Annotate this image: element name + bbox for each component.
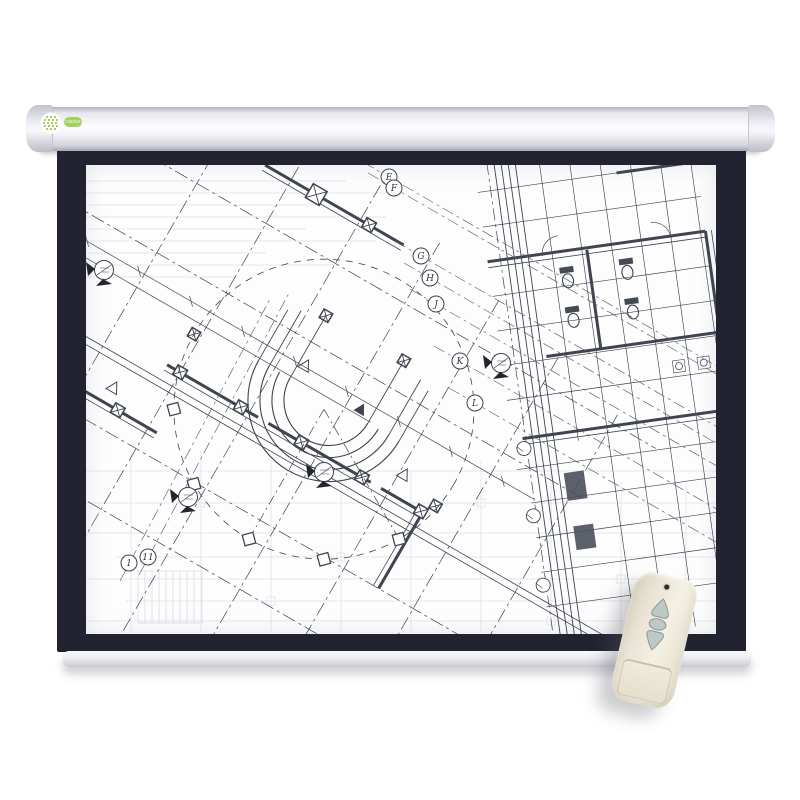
svg-text:H: H [425,274,434,284]
blueprint-wing-a [86,165,716,634]
shaft-block [564,470,588,501]
grid-bubble: H [404,263,716,488]
svg-text:1: 1 [126,559,132,569]
product-photo: E F G H J K L 1 11 [0,0,800,800]
screen-surface: E F G H J K L 1 11 [86,165,716,634]
blueprint-underlay [86,181,716,631]
remote-buttons [633,593,683,656]
svg-text:K: K [456,357,465,367]
dashed-circle [119,204,529,614]
ir-led-icon [664,584,670,590]
grid-bubble: E [363,165,716,387]
housing-end-cap-right [748,105,775,152]
blueprint-drawing: E F G H J K L 1 11 [86,165,716,634]
brand-globe-icon [40,112,62,134]
stop-button [648,617,667,632]
blueprint-wing-b [461,165,716,634]
svg-text:G: G [417,252,424,262]
roller-housing [38,107,762,151]
raise-button [651,597,672,619]
grid-bubble: F [368,173,716,398]
triangle-markers [106,279,435,542]
battery-door [616,658,673,705]
svg-text:11: 11 [142,553,153,563]
lower-button [644,630,665,652]
shaft-block [573,524,596,551]
brand-wordmark: cactus [64,117,82,127]
svg-text:F: F [390,184,398,194]
svg-text:L: L [471,399,478,409]
track-bubbles [516,441,551,593]
